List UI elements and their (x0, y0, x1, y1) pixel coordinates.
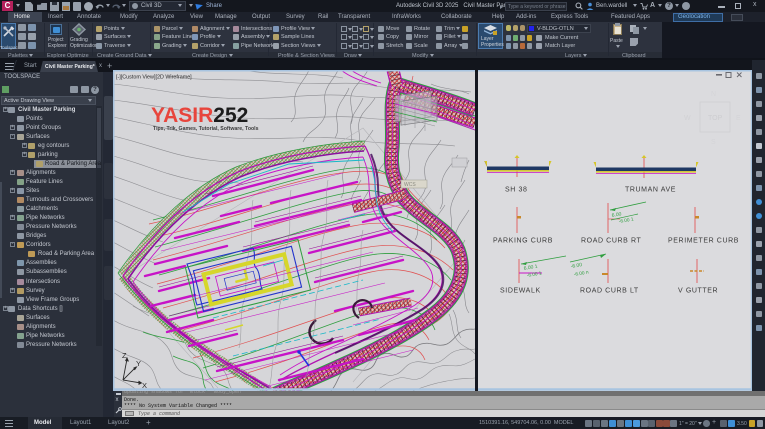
svg-text:W: W (684, 115, 691, 122)
svg-text:ROAD CURB RT: ROAD CURB RT (581, 238, 641, 245)
svg-text:YASIR252: YASIR252 (151, 104, 248, 127)
svg-text:PARKING CURB: PARKING CURB (493, 238, 553, 245)
svg-text:ROAD CURB LT: ROAD CURB LT (580, 288, 639, 295)
svg-text:V GUTTER: V GUTTER (678, 288, 718, 295)
svg-text:PERIMETER CURB: PERIMETER CURB (668, 238, 739, 245)
svg-text:Tips, Trik, Games, Tutorial,: Tips, Trik, Games, Tutorial, Software, T… (153, 126, 259, 132)
svg-text:TRUMAN AVE: TRUMAN AVE (625, 187, 676, 194)
svg-text:Y: Y (136, 359, 141, 368)
svg-text:SH 38: SH 38 (505, 187, 527, 194)
svg-text:Z: Z (122, 351, 127, 360)
svg-text:SIDEWALK: SIDEWALK (500, 288, 541, 295)
svg-text:[-][Custom View][2D Wireframe]: [-][Custom View][2D Wireframe] (116, 75, 192, 81)
svg-text:E: E (736, 115, 741, 122)
svg-text:N: N (711, 91, 716, 98)
svg-text:TOP: TOP (708, 115, 723, 122)
svg-text:S: S (711, 139, 716, 146)
svg-text:WCS: WCS (404, 182, 416, 188)
